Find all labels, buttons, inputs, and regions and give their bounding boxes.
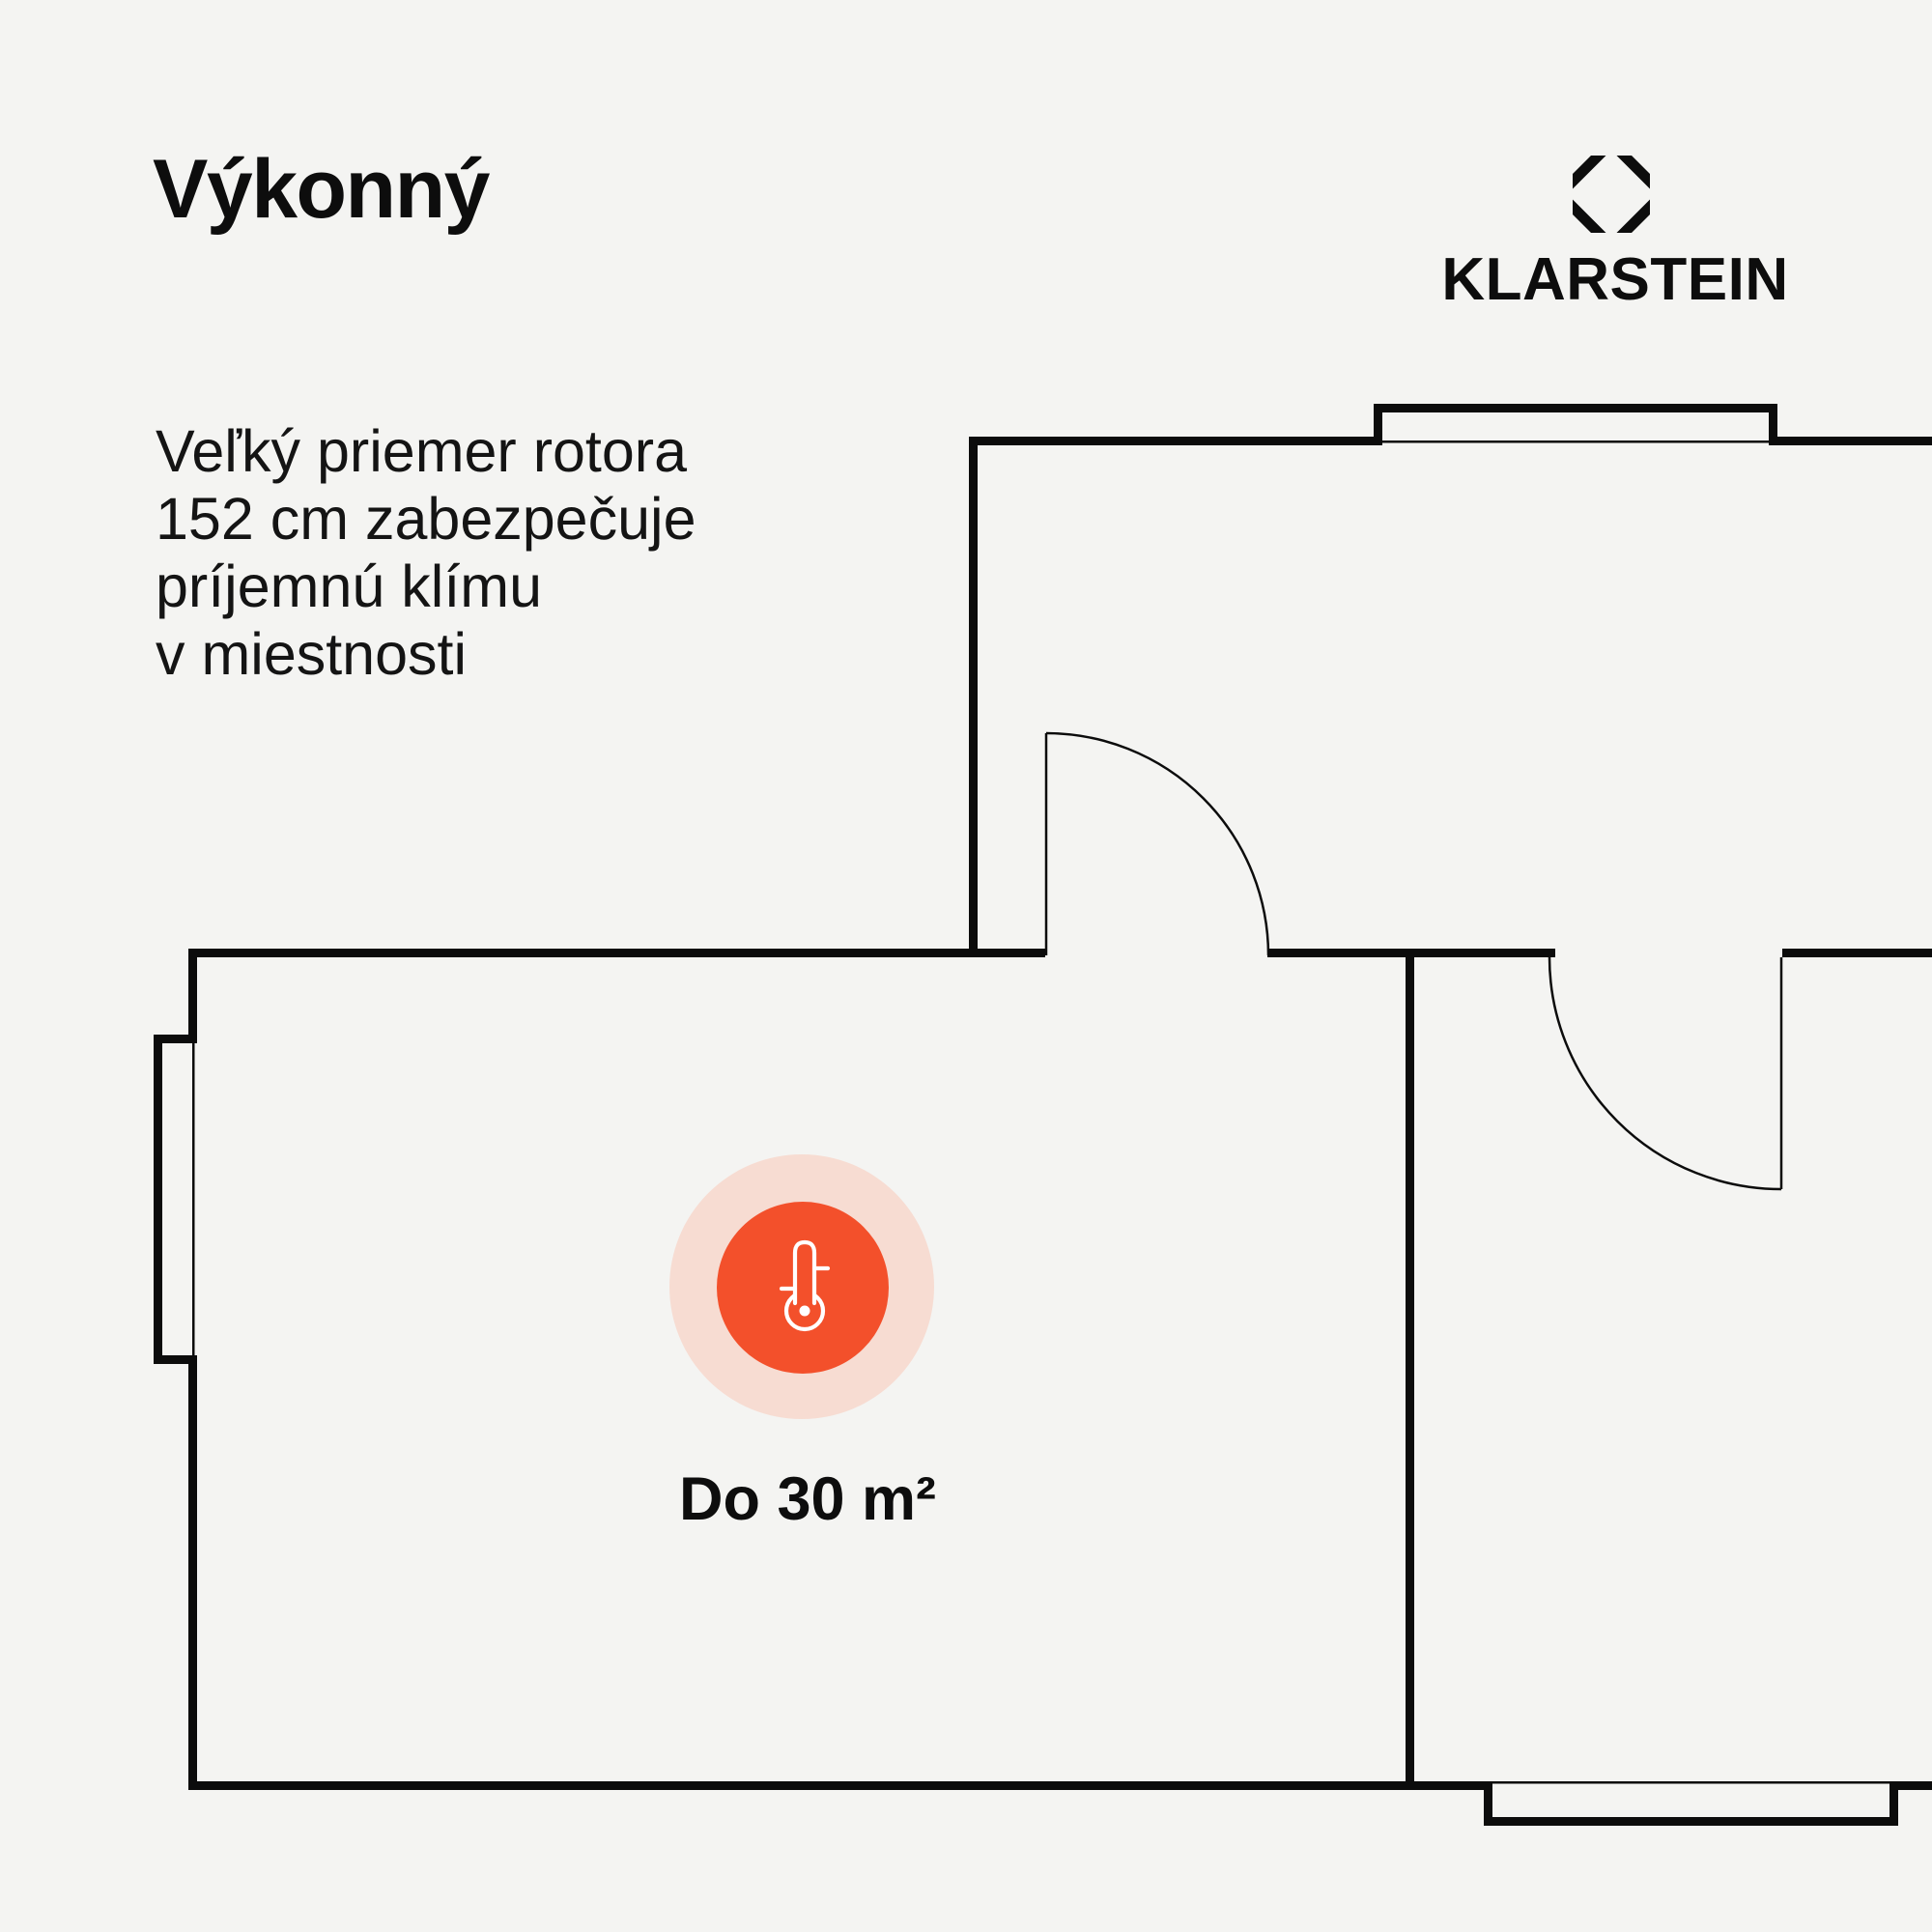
mid-wall-left-segment [188, 949, 1045, 957]
bottom-window-right-jamb [1889, 1781, 1898, 1826]
top-window [1374, 404, 1777, 445]
top-window-left-jamb [1374, 404, 1382, 445]
room-area-label: Do 30 m² [614, 1464, 1001, 1534]
wall-top-right-segment [1774, 437, 1932, 445]
left-window [154, 1035, 197, 1364]
room-marker [669, 1154, 934, 1419]
upper-room-walls [969, 437, 1932, 957]
thermometer-dot [800, 1306, 810, 1317]
left-wall-upper-segment [188, 949, 197, 1042]
bottom-window [1484, 1781, 1898, 1826]
bottom-wall-left-segment [188, 1781, 1492, 1790]
door-right [1549, 957, 1781, 1189]
left-room-walls [188, 949, 1932, 1790]
left-window-bottom-jamb [154, 1355, 197, 1364]
bottom-window-outer-edge [1484, 1817, 1898, 1826]
left-wall-lower-segment [188, 1356, 197, 1790]
wall-top-left-segment [969, 437, 1378, 445]
thermometer-stem [795, 1242, 814, 1303]
mid-wall-right-segment [1782, 949, 1932, 957]
middle-walls [188, 949, 1932, 1790]
bottom-wall-right-segment [1893, 1781, 1932, 1790]
left-window-outer-edge [154, 1035, 162, 1364]
upper-room-left-wall [969, 437, 978, 957]
bottom-window-sill-line [1492, 1781, 1889, 1784]
floor-plan [0, 0, 1932, 1932]
door-swing-arc [1046, 733, 1268, 955]
top-window-right-jamb [1769, 404, 1777, 445]
top-window-outer-edge [1374, 404, 1777, 412]
room-divider-wall [1406, 949, 1414, 1790]
door-upper [1046, 733, 1268, 955]
top-window-sill-line [1382, 440, 1769, 443]
door-swing-arc [1549, 957, 1781, 1189]
left-window-sill-line [192, 1043, 195, 1355]
infographic-canvas: Výkonný Veľký priemer rotora 152 cm zabe… [0, 0, 1932, 1932]
bottom-window-left-jamb [1484, 1781, 1492, 1826]
left-window-top-jamb [154, 1035, 197, 1043]
